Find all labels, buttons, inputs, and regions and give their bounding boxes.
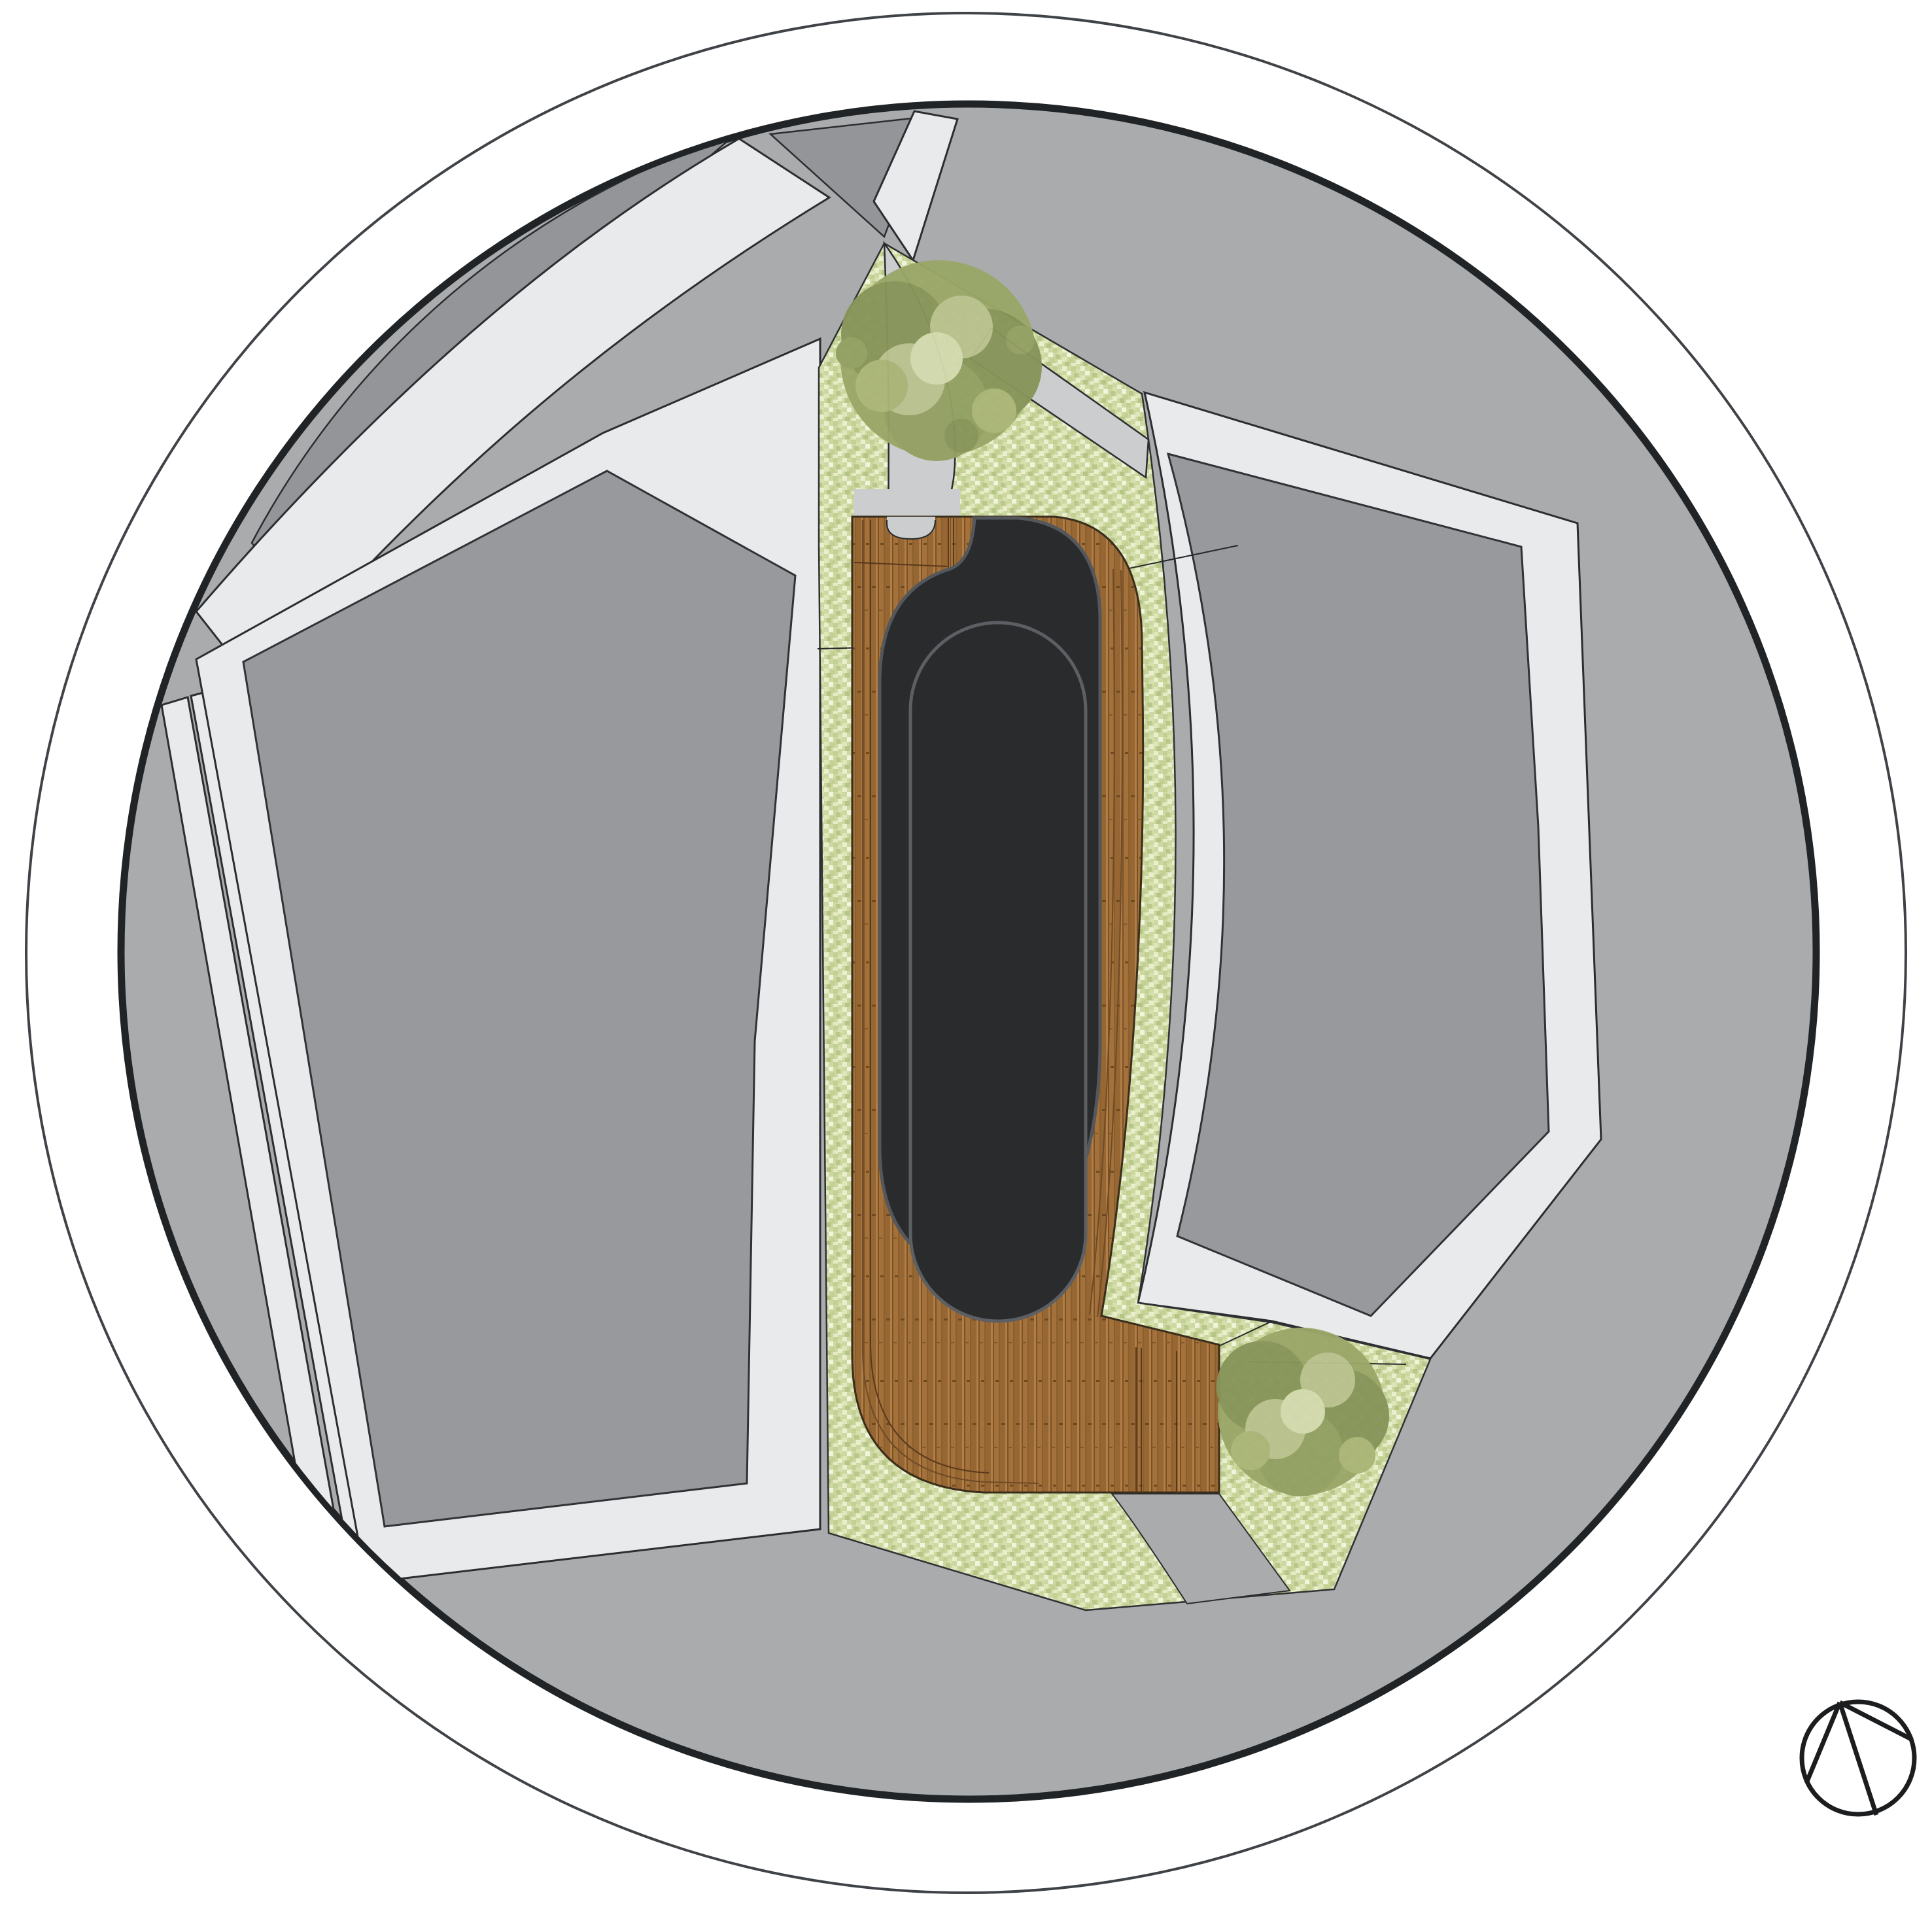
north-arrow-icon [1802, 1702, 1914, 1815]
east-building-block [1168, 454, 1549, 1316]
building-inner-roof [910, 623, 1086, 1321]
site-plan-canvas [0, 0, 1932, 1932]
entry-apron [854, 489, 960, 517]
site-plan-page [0, 0, 1932, 1932]
